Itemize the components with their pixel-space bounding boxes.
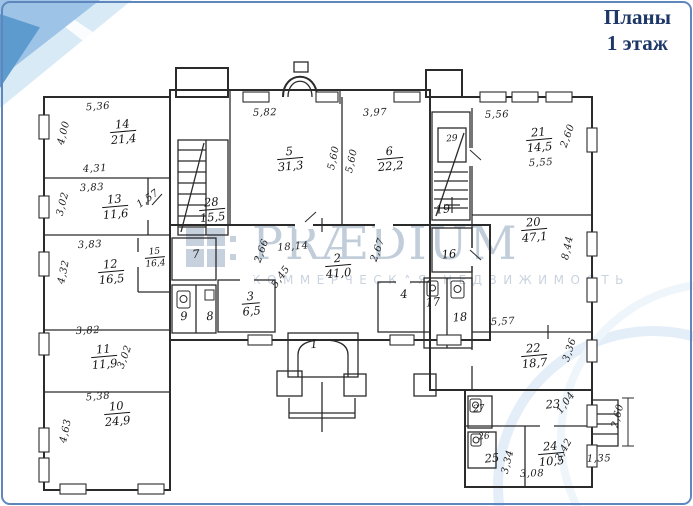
room-number: 25: [484, 451, 500, 465]
room-area: 6,5: [242, 303, 261, 318]
dim-label: 4,31: [83, 163, 108, 175]
dim-label: 3,08: [520, 468, 545, 480]
room-area: 16,4: [145, 257, 166, 270]
room-label-10: 1024,9: [103, 399, 131, 429]
room-area: 11,6: [102, 206, 129, 222]
room-label-8: 8: [206, 310, 214, 323]
title-line-2: 1 этаж: [604, 30, 671, 56]
room-label-6: 622,2: [376, 144, 404, 174]
room-number: 16: [441, 247, 457, 261]
room-label-20: 2047,1: [520, 215, 548, 245]
room-number: 27: [473, 404, 485, 415]
room-label-27: 27: [473, 404, 485, 415]
room-number: 29: [446, 134, 458, 145]
room-area: 24,9: [104, 413, 131, 429]
room-label-15: 1516,4: [144, 246, 166, 270]
room-number: 7: [192, 248, 200, 261]
room-area: 22,2: [377, 158, 404, 174]
title-line-1: Планы: [604, 4, 671, 30]
room-number: 4: [400, 288, 408, 301]
room-label-2: 241,0: [324, 251, 352, 281]
room-label-12: 1216,5: [97, 257, 125, 287]
room-label-13: 1311,6: [101, 192, 129, 222]
dim-label: 5,57: [491, 316, 516, 328]
room-label-11: 1111,9: [90, 342, 118, 372]
room-number: 18: [452, 310, 468, 324]
room-area: 18,7: [521, 355, 548, 371]
room-label-26: 26: [478, 432, 490, 443]
page-title: Планы 1 этаж: [604, 4, 671, 57]
room-area: 21,4: [110, 131, 137, 147]
room-area: 15,5: [199, 209, 226, 225]
dim-label: 18,14: [277, 240, 309, 253]
room-area: 41,0: [325, 265, 352, 281]
room-label-5: 531,3: [276, 144, 304, 174]
room-area: 47,1: [521, 229, 548, 245]
room-number: 8: [206, 310, 214, 323]
room-number: 17: [425, 295, 441, 309]
dim-label: 3,83: [80, 182, 105, 194]
room-label-3: 36,5: [241, 289, 262, 318]
room-number: 9: [180, 310, 188, 323]
room-label-28: 2815,5: [198, 195, 226, 225]
dim-label: 3,82: [76, 325, 101, 337]
dim-label: 5,36: [86, 101, 111, 114]
room-label-18: 18: [452, 310, 468, 324]
room-label-25: 25: [484, 451, 500, 465]
room-area: 11,9: [91, 356, 118, 372]
room-label-17: 17: [425, 295, 441, 309]
room-label-29: 29: [446, 134, 458, 145]
room-area: 14,5: [526, 139, 553, 155]
room-label-19: 19: [435, 202, 451, 216]
dim-label: 5,38: [85, 390, 110, 403]
room-label-4: 4: [400, 288, 408, 301]
room-label-7: 7: [192, 248, 200, 261]
floor-plan-page: Планы 1 этаж PRÆDIUM КОММЕРЧЕСКАЯ НЕДВИЖ…: [0, 0, 693, 506]
dim-label: 5,82: [253, 107, 278, 119]
dim-label: 3,97: [363, 107, 388, 119]
room-number: 26: [478, 432, 490, 443]
room-label-22: 2218,7: [520, 341, 548, 371]
room-number: 1: [310, 338, 318, 351]
room-number: 19: [435, 202, 451, 216]
room-label-14: 1421,4: [109, 117, 137, 147]
room-label-9: 9: [180, 310, 188, 323]
room-label-21: 2114,5: [525, 125, 553, 155]
room-label-16: 16: [441, 247, 457, 261]
dim-label: 1,35: [587, 453, 612, 465]
room-area: 31,3: [277, 158, 304, 174]
room-label-1: 1: [310, 338, 318, 351]
dim-label: 3,83: [78, 239, 103, 251]
dim-label: 5,56: [485, 109, 510, 121]
room-area: 16,5: [98, 271, 125, 287]
dim-label: 5,55: [529, 157, 554, 169]
